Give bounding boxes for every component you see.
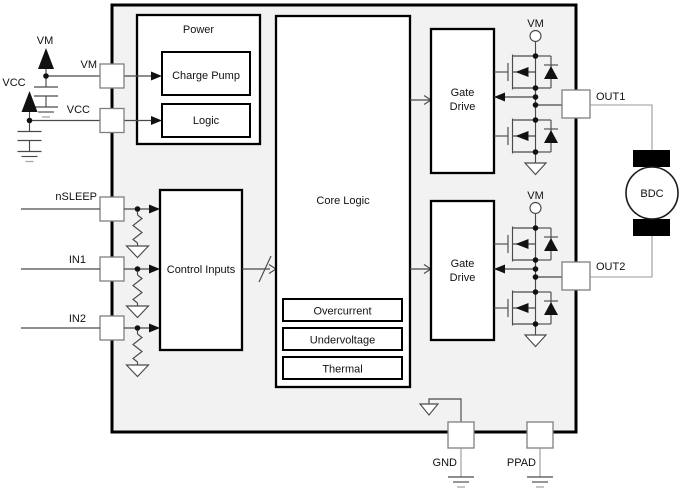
pin-ppad-label: PPAD (507, 457, 536, 469)
motor-driver-block-diagram: VM VCC Power Charge Pump Logic VM VCC nS… (0, 0, 680, 492)
pin-gnd-label: GND (433, 457, 458, 469)
gate-drive2-label-line1: Gate (451, 258, 475, 270)
vm-supply-arrow-icon (38, 48, 54, 76)
pin-vcc (100, 109, 124, 133)
pin-out1-label: OUT1 (596, 91, 625, 103)
pin-out2-label: OUT2 (596, 261, 625, 273)
vcc-supply-label: VCC (2, 77, 25, 89)
thermal-label: Thermal (322, 364, 362, 376)
bridge2-vm-label: VM (527, 190, 544, 202)
pin-ppad (527, 422, 553, 448)
pin-in1 (100, 257, 124, 281)
control-inputs-label: Control Inputs (167, 264, 236, 276)
vm-junction-dot (43, 73, 49, 79)
vcc-supply-arrow-icon (22, 91, 38, 119)
pin-nsleep-label: nSLEEP (55, 191, 97, 203)
power-block: Power Charge Pump Logic (137, 15, 260, 144)
vm-bypass-cap-icon (34, 79, 58, 118)
vcc-supply: VCC (2, 77, 100, 162)
gate-drive1-label-line1: Gate (451, 87, 475, 99)
power-block-title: Power (183, 24, 215, 36)
vcc-junction-dot (27, 118, 33, 124)
out1-motor-wire (590, 105, 652, 151)
diagram-canvas: VM VCC Power Charge Pump Logic VM VCC nS… (0, 0, 680, 492)
gate-drive1-block: Gate Drive (431, 29, 494, 173)
bdc-motor: BDC (590, 105, 678, 277)
pin-out1 (562, 90, 590, 118)
pin-in1-label: IN1 (69, 254, 86, 266)
pin-in2 (100, 316, 124, 340)
pin-gnd (448, 422, 474, 448)
core-logic-label: Core Logic (316, 195, 370, 207)
gate-drive2-block: Gate Drive (431, 201, 494, 340)
gate-drive2-label-line2: Drive (450, 272, 476, 284)
pin-in2-label: IN2 (69, 313, 86, 325)
ppad-earth-icon (527, 477, 553, 487)
pin-vm-label: VM (81, 59, 98, 71)
pin-vcc-label: VCC (67, 104, 90, 116)
core-logic-block: Core Logic Overcurrent Undervoltage Ther… (276, 16, 410, 387)
pin-out2 (562, 262, 590, 290)
vm-supply-label: VM (37, 35, 54, 47)
motor-label: BDC (640, 188, 663, 200)
gnd-earth-icon (448, 477, 474, 487)
undervoltage-label: Undervoltage (310, 335, 375, 347)
motor-brush-bottom (633, 219, 670, 236)
vcc-bypass-cap-icon (18, 123, 42, 162)
gate-drive1-label-line2: Drive (450, 101, 476, 113)
control-inputs-block: Control Inputs (160, 190, 242, 350)
motor-brush-top (633, 150, 670, 167)
logic-label: Logic (193, 115, 220, 127)
pin-vm (100, 64, 124, 88)
bridge1-vm-label: VM (527, 18, 544, 30)
overcurrent-label: Overcurrent (313, 306, 371, 318)
pin-nsleep (100, 197, 124, 221)
charge-pump-label: Charge Pump (172, 70, 240, 82)
